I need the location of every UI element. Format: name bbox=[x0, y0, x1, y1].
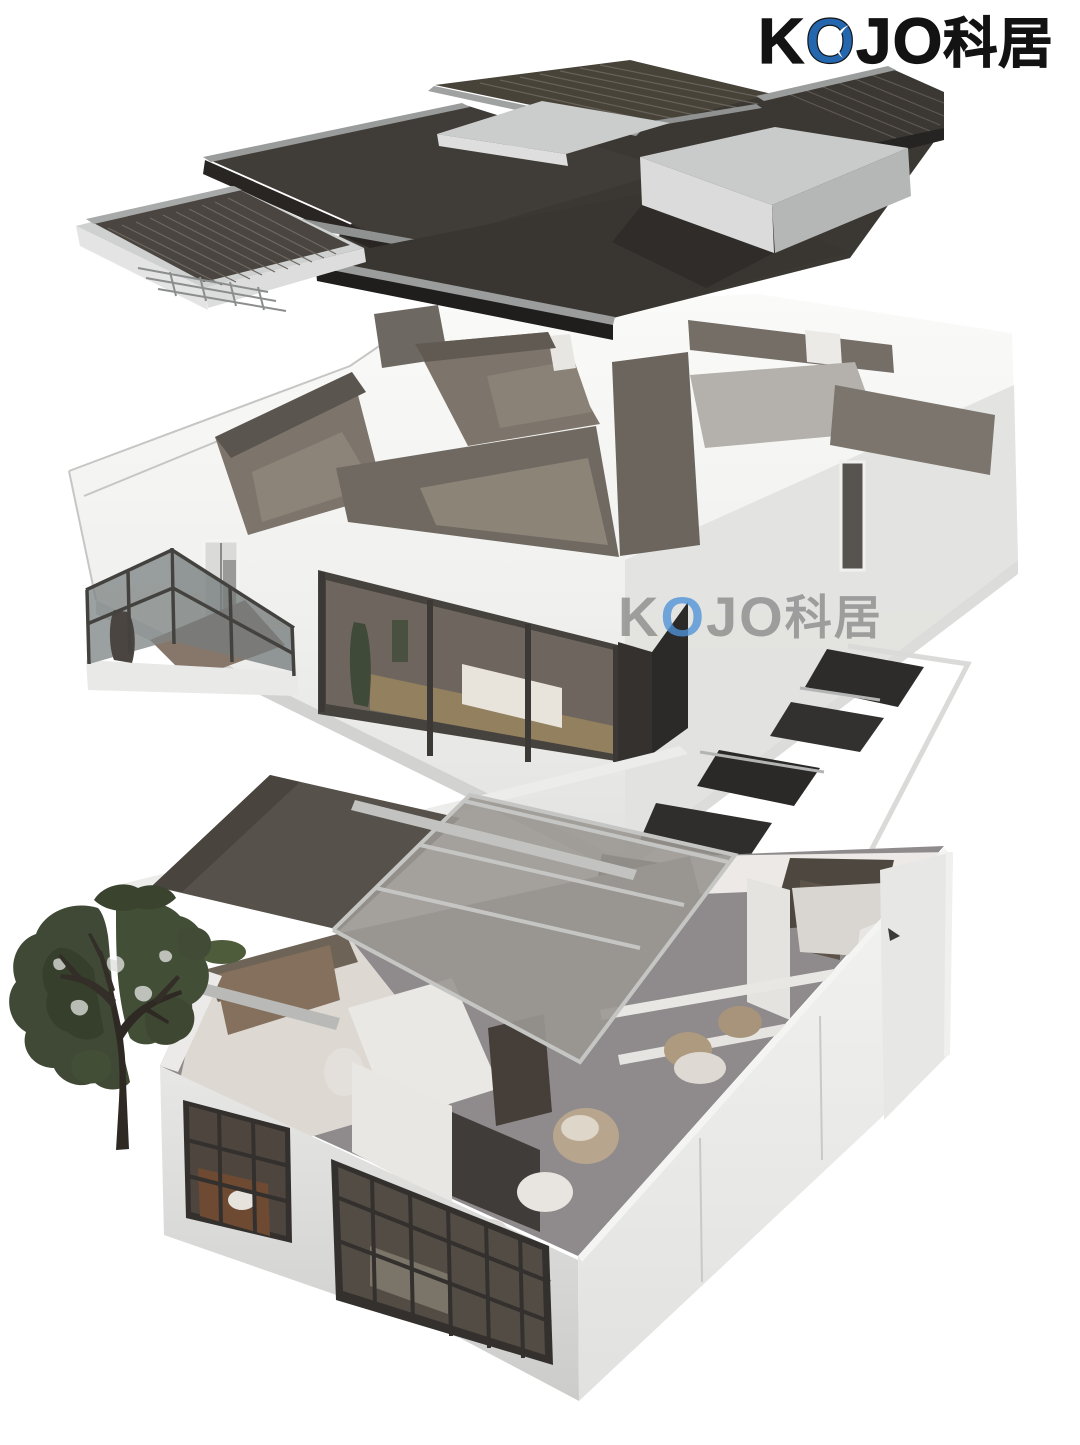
svg-text:KOJO科居: KOJO科居 bbox=[618, 585, 883, 648]
svg-text:KOJO科居: KOJO科居 bbox=[758, 5, 1053, 77]
